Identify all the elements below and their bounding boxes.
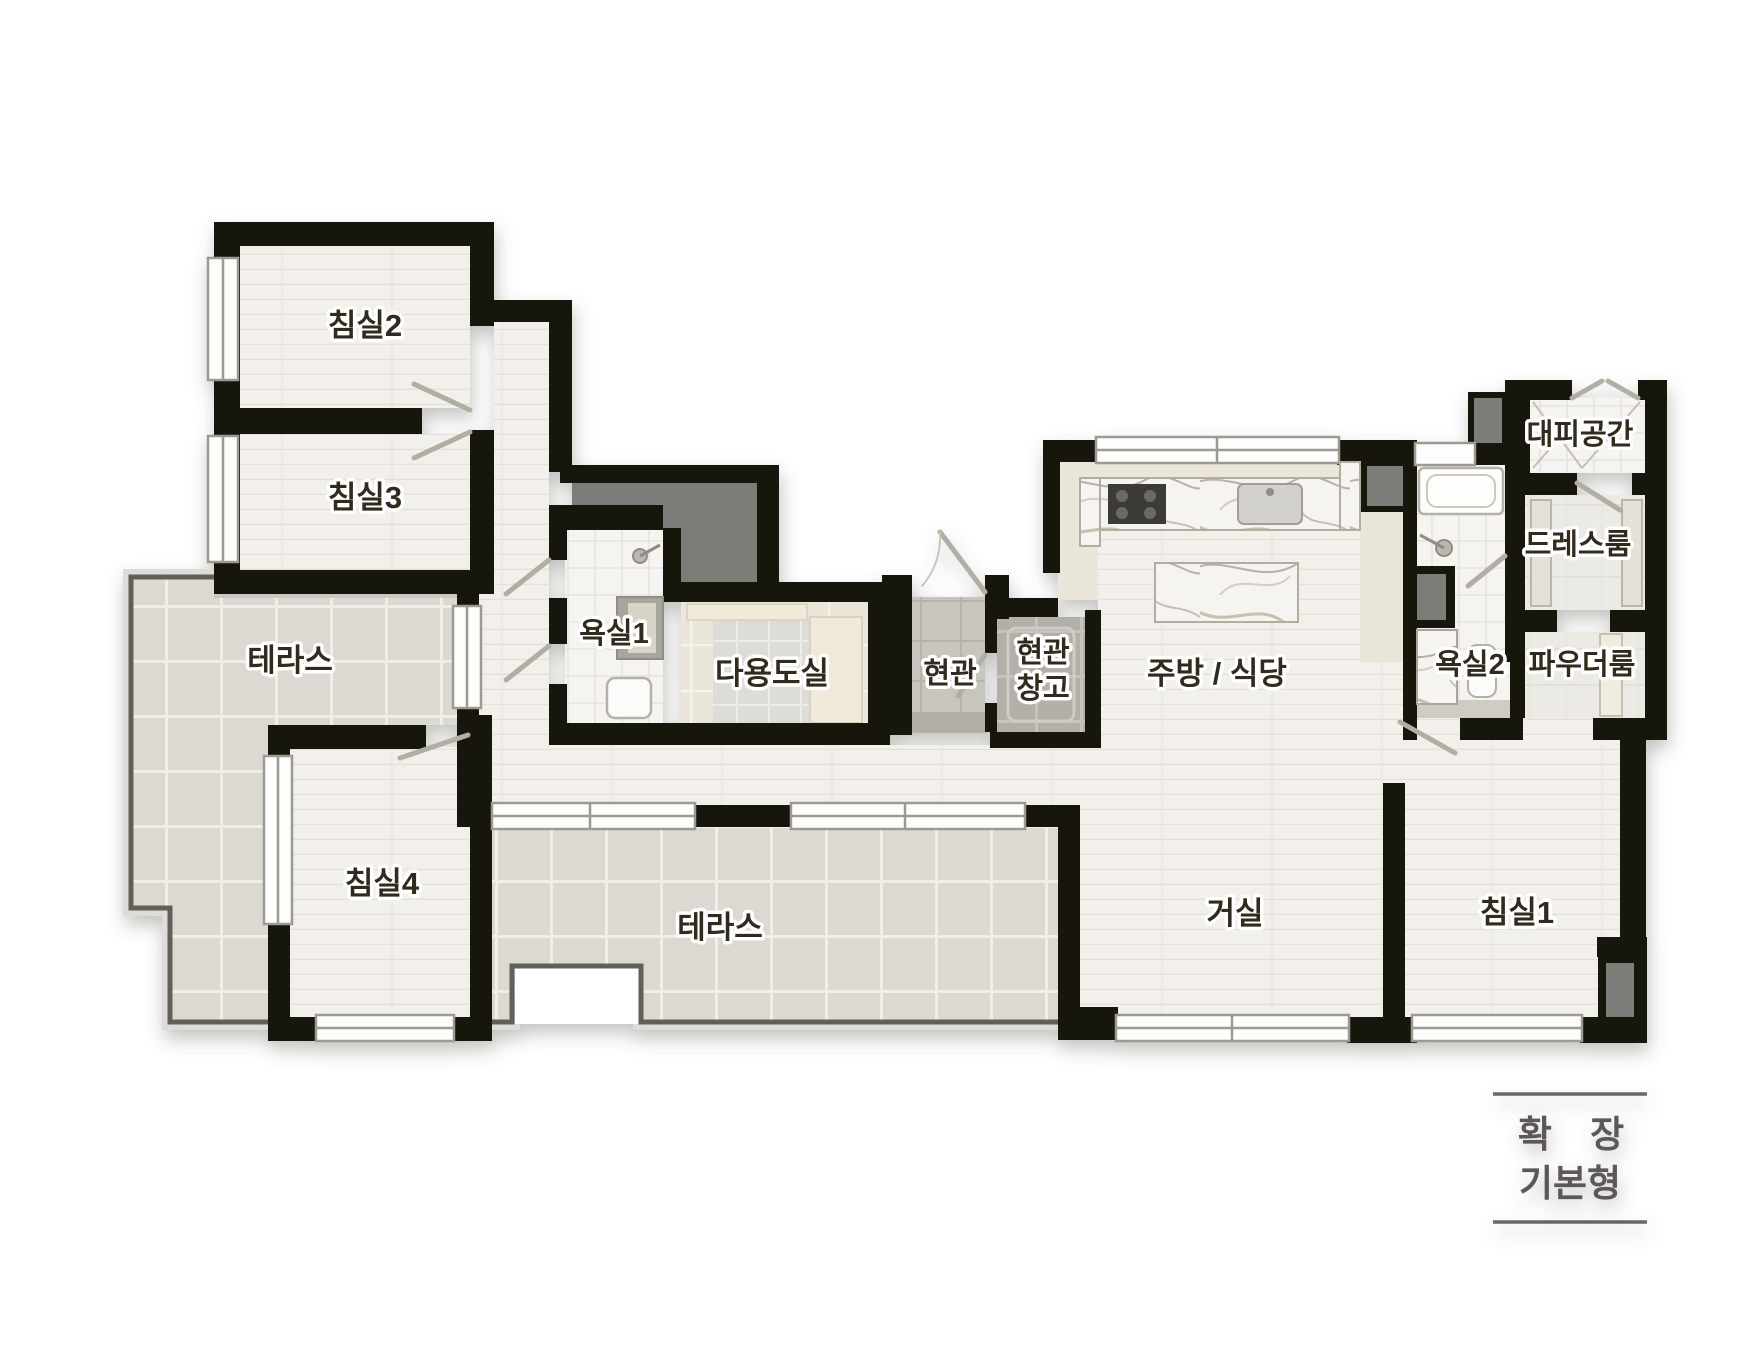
toilet-bathroom1: [607, 678, 651, 718]
wall-segment: [882, 575, 912, 735]
wall-segment: [1610, 610, 1667, 632]
wall-segment: [1043, 443, 1060, 573]
wall-segment: [470, 430, 494, 594]
wall-segment: [1505, 473, 1577, 495]
wall-segment: [1460, 718, 1523, 740]
kitchen-counter-return-left: [1080, 478, 1100, 546]
wall-segment: [470, 745, 492, 1017]
wall-segment: [663, 528, 681, 582]
label-shelter: 대피공간: [1527, 418, 1634, 451]
wall-segment: [268, 1017, 318, 1041]
wall-segment: [693, 805, 793, 827]
wall-segment: [1383, 783, 1405, 1017]
label-entrance-storage-line2: 창고: [1016, 672, 1069, 705]
duct-shelter: [1474, 398, 1502, 450]
wall-segment: [458, 805, 492, 827]
wall-segment: [1085, 610, 1101, 747]
label-kitchen-dining: 주방 / 식당: [1147, 656, 1287, 691]
caption-line1: 확 장: [1518, 1114, 1638, 1155]
wall-segment: [1505, 380, 1572, 400]
kitchen-counter-return-right: [1340, 462, 1360, 530]
label-living-room: 거실: [1206, 896, 1263, 931]
door-shelter-leaves: [1572, 381, 1638, 398]
wall-segment: [990, 732, 1101, 748]
wall-segment: [985, 617, 997, 653]
wall-segment: [1505, 610, 1557, 632]
wall-segment: [1620, 718, 1646, 940]
label-bedroom2: 침실2: [328, 308, 402, 343]
wall-segment: [1058, 1007, 1118, 1040]
wall-segment: [1403, 462, 1417, 740]
wall-segment: [988, 598, 1058, 617]
wall-segment: [1645, 380, 1667, 718]
wall-segment: [549, 505, 663, 530]
terrace-notch: [515, 966, 639, 1024]
label-bedroom4: 침실4: [345, 866, 420, 901]
label-powder-room: 파우더룸: [1529, 648, 1636, 681]
wall-segment: [549, 322, 572, 472]
kitchen-faucet: [1266, 488, 1274, 496]
wall-segment: [1510, 662, 1525, 718]
label-terrace-bottom: 테라스: [677, 910, 763, 945]
wall-segment: [549, 684, 567, 723]
floorplan-canvas: 침실2 침실3 테라스 욕실1 다용도실 현관 현관창고 주방 / 식당 욕실2…: [0, 0, 1760, 1360]
stove-burner: [1116, 507, 1128, 519]
label-entrance-storage-line1: 현관: [1016, 636, 1070, 669]
wall-segment: [1473, 443, 1507, 465]
stove-burner: [1144, 490, 1156, 502]
door-entrance-arc: [922, 532, 940, 586]
window-bathroom2-north: [1415, 443, 1475, 465]
wall-segment: [1634, 937, 1647, 1043]
wall-segment: [549, 528, 567, 560]
wall-segment: [1058, 805, 1080, 1017]
label-utility-room: 다용도실: [715, 656, 829, 691]
label-bathroom2: 욕실2: [1435, 648, 1505, 681]
plan-type-caption: 확 장 기본형: [1493, 1094, 1647, 1222]
wall-segment: [214, 222, 494, 246]
wall-segment: [549, 723, 890, 745]
label-terrace-left: 테라스: [247, 643, 333, 678]
wall-segment: [268, 725, 426, 749]
kitchen-island: [1155, 563, 1298, 622]
terrace-left-floor: [131, 574, 214, 908]
wall-segment: [1632, 473, 1667, 495]
utility-shelf: [687, 604, 807, 620]
stove-burner: [1144, 507, 1156, 519]
wall-segment: [238, 408, 422, 434]
door-entrance-leaf: [940, 532, 985, 592]
kitchen-hall-floor: [1058, 617, 1403, 805]
stove-burner: [1116, 490, 1128, 502]
terrace-left-floor-lower: [170, 908, 214, 1022]
label-dress-room: 드레스룸: [1525, 528, 1632, 561]
hall-floor: [479, 745, 1058, 805]
label-bedroom1: 침실1: [1480, 895, 1554, 930]
label-entrance: 현관: [923, 657, 977, 690]
corridor-floor: [494, 322, 549, 745]
wall-segment: [1347, 1017, 1417, 1043]
bedroom1-floor: [1398, 718, 1620, 1017]
floorplan-page: 침실2 침실3 테라스 욕실1 다용도실 현관 현관창고 주방 / 식당 욕실2…: [0, 0, 1760, 1360]
wall-segment: [470, 300, 572, 322]
duct-kitchen: [1367, 466, 1403, 506]
entrance-shoe-threshold: [912, 712, 985, 733]
wall-segment: [757, 465, 779, 582]
wall-segment: [1505, 495, 1525, 662]
label-bedroom3: 침실3: [328, 480, 402, 515]
terrace-west-strip-floor: [214, 725, 268, 1022]
wall-segment: [985, 703, 997, 732]
label-bathroom1: 욕실1: [579, 617, 649, 650]
wall-segment: [452, 1017, 492, 1041]
duct-bath2: [1412, 574, 1446, 620]
wall-segment: [214, 570, 494, 594]
floorplan: 침실2 침실3 테라스 욕실1 다용도실 현관 현관창고 주방 / 식당 욕실2…: [131, 222, 1667, 1222]
caption-line2: 기본형: [1519, 1163, 1621, 1204]
wall-segment: [1043, 440, 1098, 462]
stove: [1108, 484, 1166, 524]
wall-segment: [663, 582, 890, 602]
duct-bedroom1: [1606, 963, 1638, 1017]
wall-segment: [560, 465, 757, 483]
wall-segment: [549, 598, 567, 644]
